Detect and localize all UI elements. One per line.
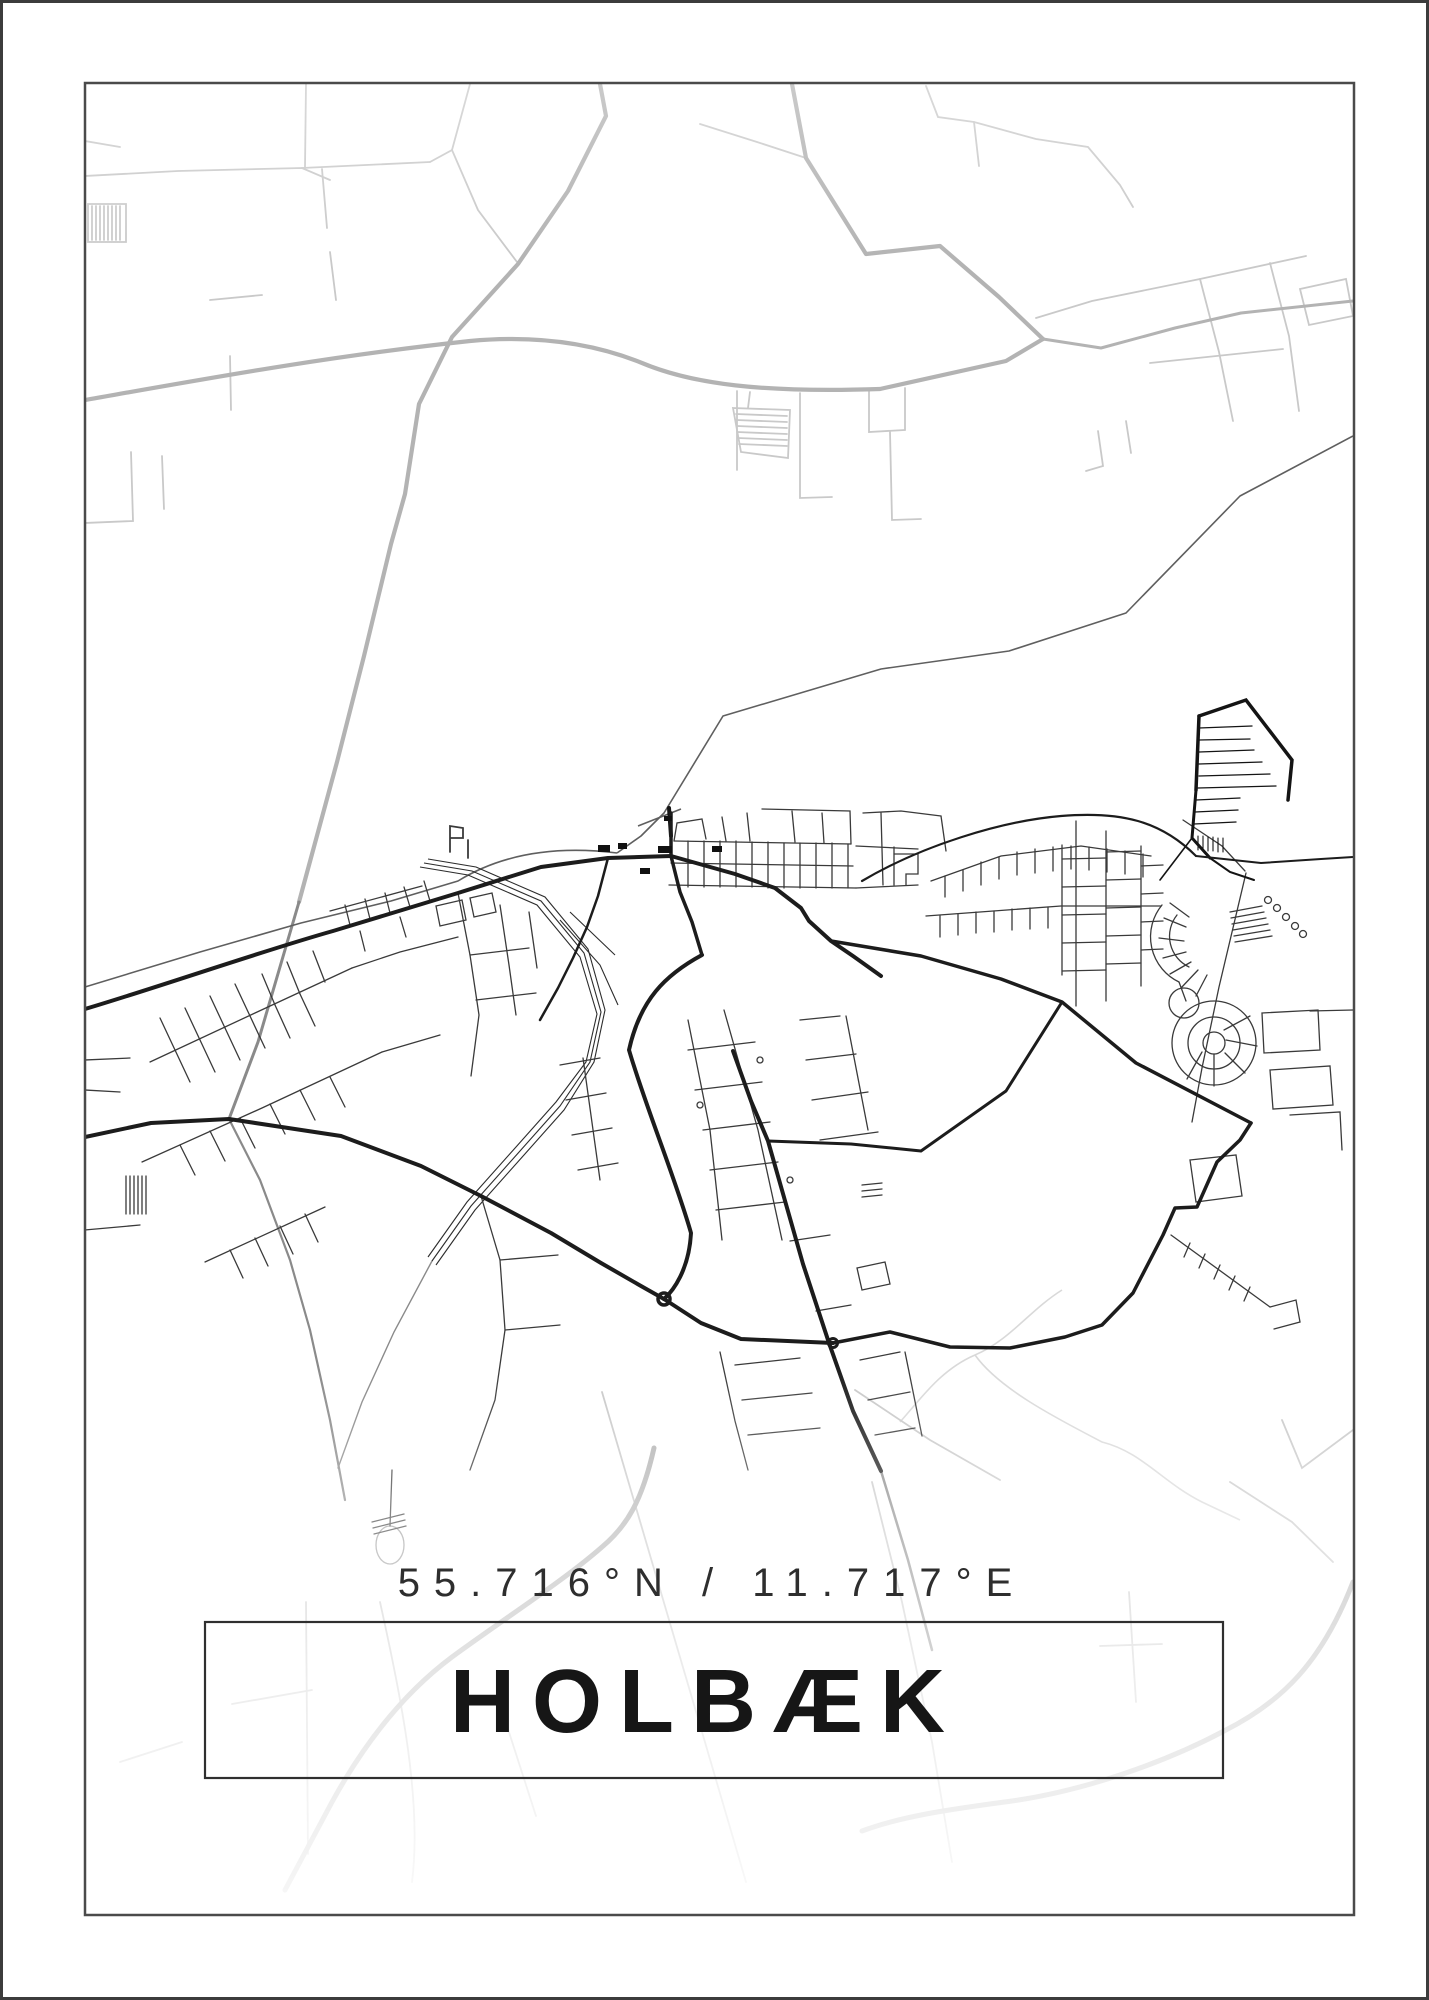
map-poster: 55.716°N / 11.717°E HOLBÆK (0, 0, 1429, 2000)
bottom-fade-overlay (86, 84, 1353, 1914)
city-title: HOLBÆK (450, 1652, 962, 1752)
map-layers (85, 84, 1353, 1914)
coordinates-label: 55.716°N / 11.717°E (398, 1561, 1027, 1605)
map-canvas: 55.716°N / 11.717°E HOLBÆK (0, 0, 1429, 2000)
